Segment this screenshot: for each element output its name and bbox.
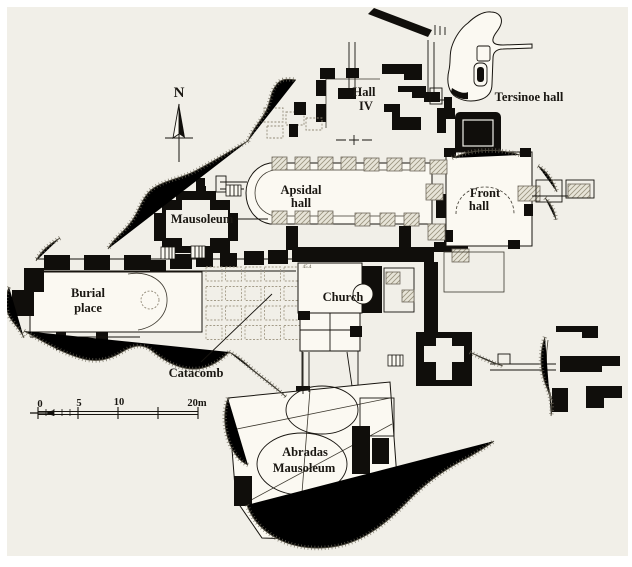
label-hall-iv-line2: IV [359, 99, 373, 113]
label-apsidal-hall-line2: hall [291, 196, 312, 210]
label-burial-place-line2: place [74, 301, 102, 315]
label-catacomb: Catacomb [169, 366, 224, 380]
label-tersinoe-hall: Tersinoe hall [495, 90, 564, 104]
label-mausoleum: Mausoleum [171, 212, 234, 226]
cross-room-structure [416, 332, 472, 386]
label-abradas-line2: Mausoleum [273, 461, 336, 475]
label-apsidal-hall-line1: Apsidal [281, 183, 323, 197]
scale-tick-10: 10 [114, 397, 125, 408]
label-front-hall-line1: Front [470, 186, 501, 200]
scale-tick-20m: 20m [187, 398, 207, 409]
label-elevation-mark: 45.4 [303, 265, 312, 270]
scale-tick-0: 0 [37, 399, 42, 410]
site-plan-figure: N 0 5 10 20m Hall IV Tersinoe hall Apsid… [0, 0, 632, 567]
label-front-hall-line2: hall [469, 199, 490, 213]
label-abradas-line1: Abradas [282, 445, 328, 459]
scale-tick-5: 5 [76, 398, 81, 409]
site-plan-canvas: N 0 5 10 20m Hall IV Tersinoe hall Apsid… [0, 0, 632, 567]
label-burial-place-line1: Burial [71, 286, 106, 300]
label-hall-iv-line1: Hall [353, 85, 376, 99]
label-church: Church [323, 290, 364, 304]
north-label: N [174, 85, 185, 101]
